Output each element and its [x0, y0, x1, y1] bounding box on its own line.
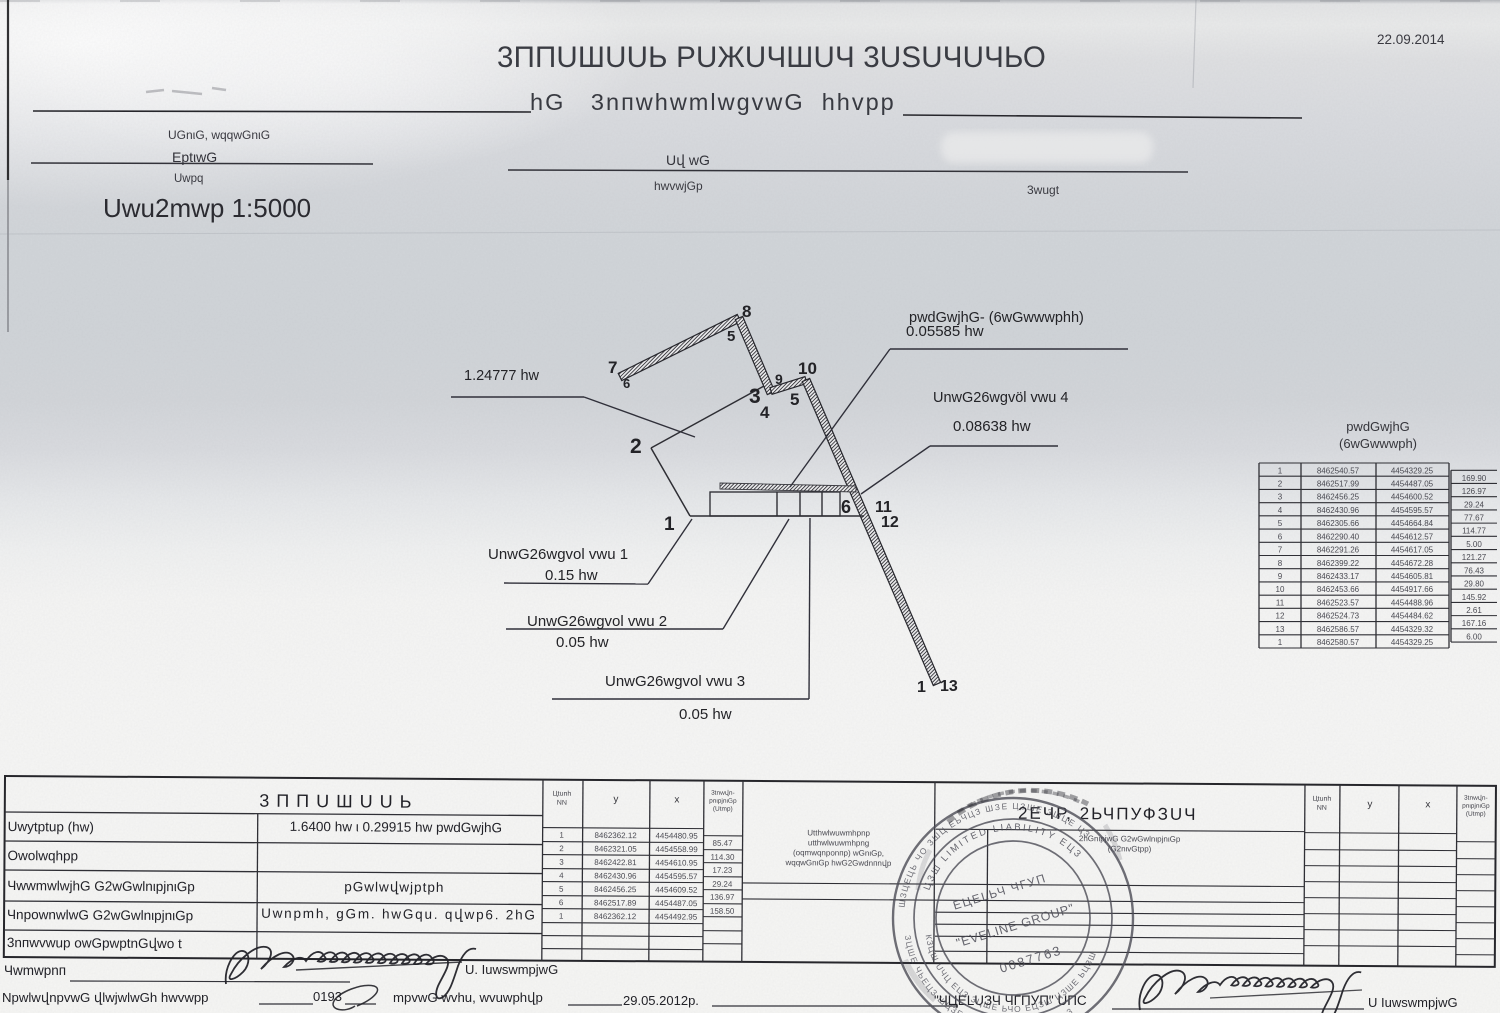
svg-text:11: 11 [1276, 598, 1285, 607]
svg-text:1.6400 hw ι 0.29915 hw pwdG: 1.6400 hw ι 0.29915 hw pwdGwjhG [290, 819, 502, 835]
svg-text:5: 5 [790, 390, 799, 409]
svg-text:4454609.52: 4454609.52 [655, 885, 698, 894]
svg-text:76.43: 76.43 [1464, 566, 1485, 575]
svg-text:1: 1 [917, 679, 926, 696]
svg-text:UnwG26wgvol vwu 2: UnwG26wgvol vwu 2 [527, 613, 667, 630]
svg-text:8462456.25: 8462456.25 [594, 885, 637, 894]
svg-text:6: 6 [623, 376, 630, 391]
svg-text:29.24: 29.24 [712, 880, 733, 889]
svg-text:10: 10 [1276, 585, 1285, 594]
svg-text:y: y [613, 794, 618, 805]
svg-text:pwdGwjhG: pwdGwjhG [1346, 419, 1410, 434]
svg-text:6: 6 [559, 898, 564, 907]
svg-text:3tnwվn-: 3tnwվn- [711, 789, 735, 797]
svg-text:0.05585 hw: 0.05585 hw [906, 323, 984, 340]
svg-text:0.05 hw: 0.05 hw [679, 706, 732, 723]
svg-text:4: 4 [559, 871, 564, 880]
svg-text:8462290.40: 8462290.40 [1317, 532, 1360, 541]
svg-text:4454617.05: 4454617.05 [1391, 546, 1434, 555]
svg-text:1: 1 [559, 912, 564, 921]
svg-text:2: 2 [1278, 480, 1283, 489]
svg-text:ΕЦΕLЬЧ ЧГУП: ΕЦΕLЬЧ ЧГУП [951, 871, 1048, 913]
svg-text:114.30: 114.30 [711, 853, 735, 862]
svg-text:wqqwGnιGp hwG2Gwdnпnվp: wqqwGnιGp hwG2Gwdnпnվp [784, 858, 892, 868]
svg-text:5: 5 [559, 885, 564, 894]
svg-text:12: 12 [881, 514, 899, 531]
svg-text:NpwlwվnpvwG վlwjwlwGh hwvwpp: NpwlwվnpvwG վlwjwlwGh hwvwpp [2, 990, 209, 1005]
svg-text:4: 4 [1278, 506, 1283, 515]
svg-text:mpvwG wvhu, wvuwphվp: mpvwG wvhu, wvuwphվp [393, 990, 543, 1005]
svg-text:4454484.62: 4454484.62 [1391, 612, 1434, 621]
svg-text:x: x [674, 794, 679, 805]
svg-text:U. IuwswmpjwG: U. IuwswmpjwG [465, 962, 558, 977]
svg-text:136.97: 136.97 [710, 893, 735, 902]
svg-text:9: 9 [1278, 572, 1283, 581]
svg-text:2hGnιpjwG G2wGwlnιpjnιGp: 2hGnιpjwG G2wGwlnιpjnιGp [1079, 834, 1181, 844]
svg-text:4454664.84: 4454664.84 [1391, 519, 1434, 528]
svg-text:Utthwlwuwmhpnp: Utthwlwuwmhpnp [807, 828, 870, 837]
svg-text:3tnwվn-: 3tnwվn- [1464, 794, 1488, 802]
svg-text:6.00: 6.00 [1466, 632, 1482, 641]
svg-text:8462430.96: 8462430.96 [594, 871, 637, 880]
svg-text:UnwG26wgvol vwu 1: UnwG26wgvol vwu 1 [488, 546, 628, 563]
svg-text:(Utmp): (Utmp) [1466, 811, 1486, 818]
svg-text:10: 10 [798, 359, 817, 378]
svg-text:8: 8 [742, 302, 751, 321]
svg-text:5.00: 5.00 [1466, 540, 1482, 549]
svg-text:x: x [1425, 799, 1430, 810]
svg-text:145.92: 145.92 [1462, 593, 1487, 602]
svg-text:y: y [1367, 799, 1372, 810]
svg-text:4454612.57: 4454612.57 [1391, 532, 1434, 541]
svg-text:Uwnpmh, gGm. hwGqu. qվwp6. 2hG: Uwnpmh, gGm. hwGqu. qվwp6. 2hG [261, 906, 537, 923]
svg-text:5: 5 [1278, 519, 1283, 528]
svg-text:(oqmwqnpоnпp) wGnιGp,: (oqmwqnpоnпp) wGnιGp, [793, 848, 884, 858]
svg-text:0.08638 hw: 0.08638 hw [953, 418, 1031, 435]
svg-text:4454492.95: 4454492.95 [655, 912, 698, 921]
svg-text:0.15 hw: 0.15 hw [545, 567, 598, 584]
svg-text:ЧnpоwnwlwG G2wGwlnιpjnιGp: ЧnpоwnwlwG G2wGwlnιpjnιGp [7, 907, 193, 923]
svg-text:8462362.12: 8462362.12 [594, 831, 637, 840]
svg-text:77.67: 77.67 [1464, 513, 1485, 522]
svg-text:7: 7 [608, 358, 617, 377]
svg-text:4454595.57: 4454595.57 [1391, 506, 1434, 515]
svg-text:8462422.81: 8462422.81 [594, 858, 637, 867]
svg-text:4454600.52: 4454600.52 [1391, 493, 1434, 502]
svg-text:Чwmwpnп: Чwmwpnп [4, 963, 66, 978]
svg-text:4454329.32: 4454329.32 [1391, 625, 1434, 634]
svg-text:3nпwvwup owGpwptnGվwо t: 3nпwvwup owGpwptnGվwо t [7, 935, 182, 951]
svg-text:29.24: 29.24 [1464, 500, 1485, 509]
svg-text:7: 7 [1278, 546, 1283, 555]
svg-text:5: 5 [727, 328, 735, 345]
svg-text:114.77: 114.77 [1462, 527, 1486, 536]
svg-text:4454329.25: 4454329.25 [1391, 638, 1434, 647]
svg-text:8462453.66: 8462453.66 [1317, 585, 1360, 594]
svg-text:2: 2 [630, 435, 642, 458]
svg-text:(6wGwwwph): (6wGwwwph) [1339, 436, 1417, 451]
svg-text:8462399.22: 8462399.22 [1317, 559, 1360, 568]
svg-text:4454605.81: 4454605.81 [1391, 572, 1434, 581]
svg-text:1: 1 [664, 514, 675, 535]
svg-text:Цtunh: Цtunh [1312, 796, 1331, 803]
svg-text:4454480.95: 4454480.95 [655, 831, 698, 840]
svg-text:4454672.28: 4454672.28 [1391, 559, 1434, 568]
svg-text:pnιpjnιGp: pnιpjnιGp [709, 798, 737, 805]
svg-text:8462580.57: 8462580.57 [1317, 638, 1360, 647]
svg-text:1.24777 hw: 1.24777 hw [464, 368, 540, 384]
svg-text:Uwytptup (hw): Uwytptup (hw) [8, 819, 94, 835]
svg-text:pnιpjnιGp: pnιpjnιGp [1462, 803, 1490, 810]
svg-text:0087763: 0087763 [998, 942, 1064, 975]
svg-text:3: 3 [559, 858, 564, 867]
svg-text:4454487.05: 4454487.05 [1391, 480, 1434, 489]
svg-text:13: 13 [940, 678, 958, 695]
svg-text:8462456.25: 8462456.25 [1317, 493, 1360, 502]
svg-text:8462433.17: 8462433.17 [1317, 572, 1360, 581]
svg-text:8462517.99: 8462517.99 [1317, 480, 1360, 489]
svg-text:167.16: 167.16 [1462, 619, 1487, 628]
svg-text:3: 3 [1278, 493, 1283, 502]
svg-text:169.90: 169.90 [1462, 474, 1487, 483]
svg-text:Цtunh: Цtunh [552, 791, 571, 798]
svg-text:126.97: 126.97 [1462, 487, 1487, 496]
svg-text:3: 3 [749, 385, 761, 408]
svg-text:4454610.95: 4454610.95 [655, 858, 698, 867]
svg-text:6: 6 [841, 497, 851, 517]
svg-text:3ППUШUUЬ: 3ППUШUUЬ [259, 791, 418, 812]
svg-text:4454488.96: 4454488.96 [1391, 598, 1434, 607]
svg-text:2.61: 2.61 [1466, 606, 1482, 615]
svg-text:4454487.05: 4454487.05 [655, 899, 698, 908]
svg-text:6: 6 [1278, 532, 1283, 541]
svg-text:ЧwwmwlwjhG G2wGwlnιpjnιGp: ЧwwmwlwjhG G2wGwlnιpjnιGp [7, 878, 195, 894]
svg-text:8462524.73: 8462524.73 [1317, 612, 1360, 621]
svg-text:1: 1 [1278, 638, 1283, 647]
svg-text:9: 9 [775, 371, 783, 387]
svg-text:0.05 hw: 0.05 hw [556, 634, 609, 651]
svg-text:8462291.26: 8462291.26 [1317, 546, 1360, 555]
svg-text:8462586.57: 8462586.57 [1317, 625, 1360, 634]
svg-text:1: 1 [559, 831, 564, 840]
svg-text:12: 12 [1276, 612, 1285, 621]
svg-text:8462517.89: 8462517.89 [594, 898, 637, 907]
svg-text:utthwlwuwmhpng: utthwlwuwmhpng [808, 838, 869, 847]
svg-text:121.27: 121.27 [1462, 553, 1487, 562]
svg-text:17.23: 17.23 [712, 866, 733, 875]
svg-text:UnwG26wgvöl vwu 4: UnwG26wgvöl vwu 4 [933, 390, 1068, 406]
svg-text:85.47: 85.47 [713, 839, 734, 848]
svg-text:pGwlwվwjptph: pGwlwվwjptph [344, 879, 444, 895]
svg-text:NN: NN [1317, 805, 1327, 812]
svg-text:UnwG26wgvol vwu 3: UnwG26wgvol vwu 3 [605, 673, 745, 690]
svg-text:(Utmp): (Utmp) [713, 806, 733, 813]
svg-text:8462430.96: 8462430.96 [1317, 506, 1360, 515]
svg-text:4: 4 [760, 403, 770, 422]
svg-text:2: 2 [559, 844, 564, 853]
svg-text:U IuwswmpjwG: U IuwswmpjwG [1368, 995, 1458, 1010]
svg-text:NN: NN [557, 800, 567, 807]
svg-text:8462321.05: 8462321.05 [594, 844, 637, 853]
svg-text:8462540.57: 8462540.57 [1317, 466, 1360, 475]
svg-text:8462305.66: 8462305.66 [1317, 519, 1360, 528]
svg-text:4454917.66: 4454917.66 [1391, 585, 1434, 594]
svg-text:13: 13 [1276, 625, 1285, 634]
svg-text:29.05.2012p.: 29.05.2012p. [623, 993, 699, 1008]
svg-text:Owolwqhpp: Owolwqhpp [7, 848, 78, 863]
svg-text:29.80: 29.80 [1464, 580, 1485, 589]
svg-text:4454595.57: 4454595.57 [655, 872, 698, 881]
svg-text:158.50: 158.50 [710, 907, 735, 916]
svg-text:1: 1 [1278, 466, 1283, 475]
svg-text:8462362.12: 8462362.12 [594, 912, 637, 921]
svg-text:8: 8 [1278, 559, 1283, 568]
svg-text:4454558.99: 4454558.99 [655, 845, 698, 854]
svg-text:4454329.25: 4454329.25 [1391, 466, 1434, 475]
svg-text:8462523.57: 8462523.57 [1317, 598, 1360, 607]
